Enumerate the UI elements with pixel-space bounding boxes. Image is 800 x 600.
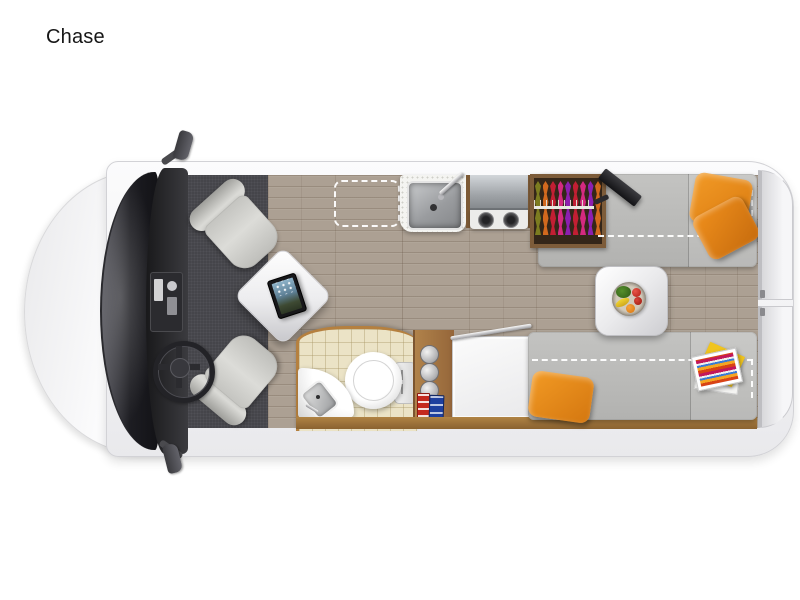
white-cabinet [452, 336, 532, 419]
page-title: Chase [46, 26, 105, 49]
floorplan-canvas: Chase [0, 0, 800, 600]
fruit-bowl [612, 282, 646, 316]
magazines [692, 342, 744, 396]
rear-door-latch [760, 308, 765, 316]
fruit-apple [632, 288, 641, 297]
center-console [150, 272, 183, 332]
garment [595, 181, 601, 235]
galley-sink-drain [430, 204, 437, 211]
stove-flip-cover [470, 175, 528, 210]
sink-drain [316, 395, 320, 399]
fruit-greens [616, 286, 631, 298]
clothes-rod [534, 206, 594, 209]
optional-space-dashed-outline [334, 180, 400, 227]
wheel-hub [170, 358, 190, 378]
console-screen [154, 279, 163, 301]
hanging-clothes [535, 179, 601, 243]
rear-door-top-panel [758, 170, 793, 300]
stove-burner [503, 212, 519, 228]
toilet [345, 352, 402, 409]
canister [420, 345, 439, 364]
toilet-lid-seam [353, 360, 394, 401]
steering-wheel [153, 341, 215, 403]
bed-outline-dash-bottom-vertical [751, 359, 753, 398]
orange-pillow [527, 370, 595, 424]
fruit-apple [634, 297, 642, 305]
stove-burner [478, 212, 494, 228]
side-mirror-top [172, 129, 194, 161]
console-vent [167, 297, 177, 315]
canister [420, 363, 439, 382]
wardrobe [530, 174, 606, 248]
magazine-cover [696, 352, 739, 386]
rear-door-latch [760, 290, 765, 298]
console-dial [167, 281, 177, 291]
fruit-orange [626, 304, 635, 313]
rear-door-bottom-panel [758, 306, 793, 428]
